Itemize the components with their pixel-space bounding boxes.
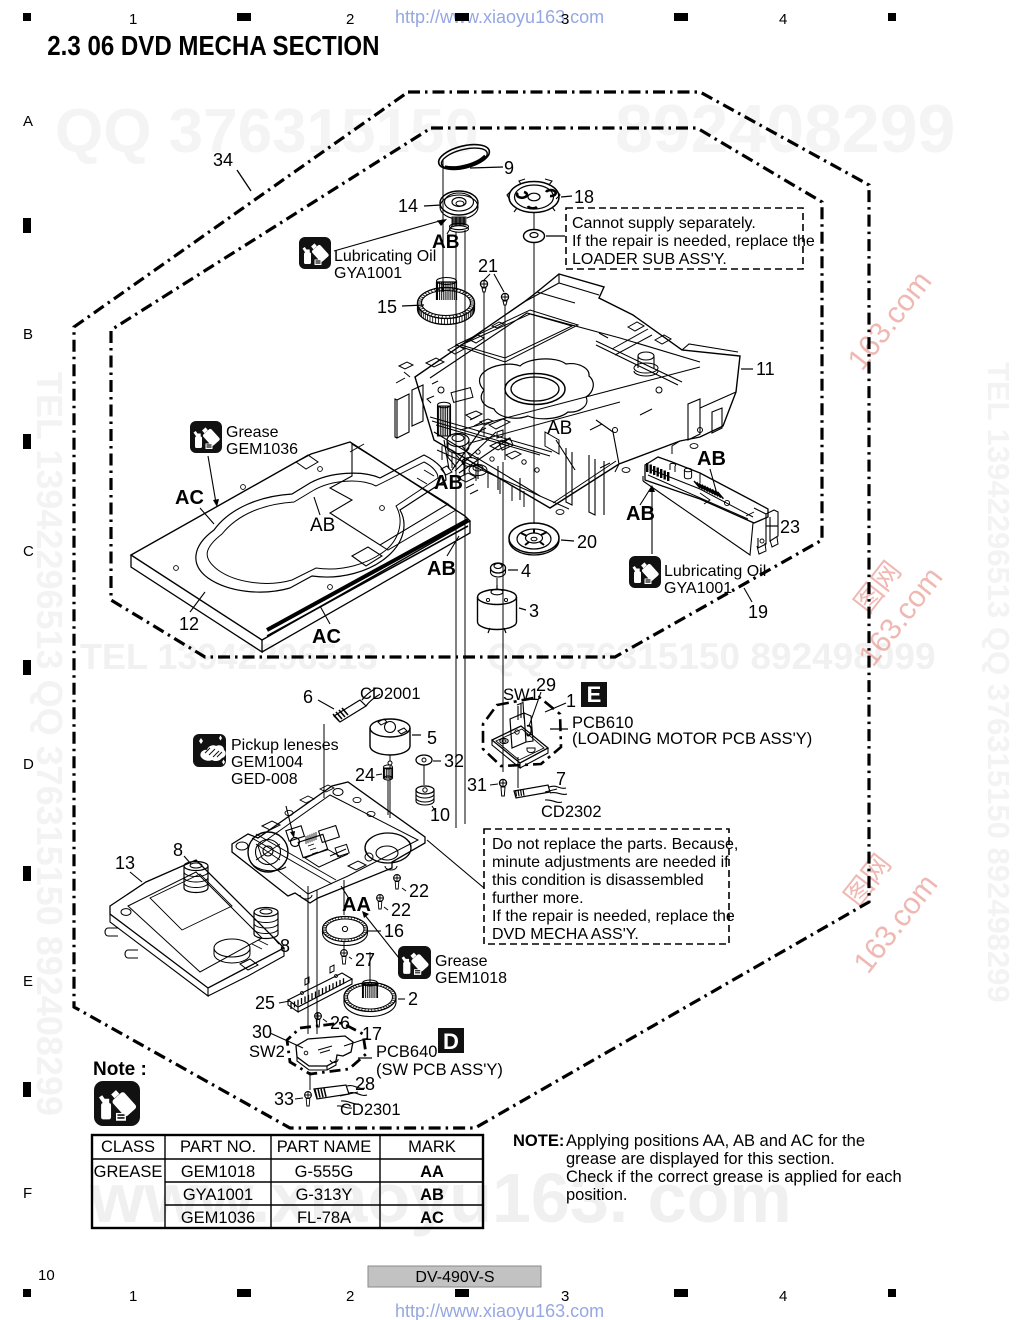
svg-text:DV-490V-S: DV-490V-S bbox=[415, 1269, 494, 1286]
svg-text:G-313Y: G-313Y bbox=[296, 1186, 353, 1204]
svg-text:AB: AB bbox=[420, 1186, 444, 1204]
svg-text:Lubricating Oil: Lubricating Oil bbox=[334, 248, 436, 265]
svg-text:3: 3 bbox=[561, 11, 569, 28]
svg-text:NOTE:: NOTE: bbox=[513, 1132, 564, 1150]
svg-text:further more.: further more. bbox=[492, 890, 584, 907]
svg-text:AC: AC bbox=[175, 487, 204, 509]
svg-text:GED-008: GED-008 bbox=[231, 771, 298, 788]
svg-text:Grease: Grease bbox=[435, 953, 488, 970]
svg-text:1: 1 bbox=[129, 1288, 137, 1305]
svg-text:PCB640: PCB640 bbox=[376, 1043, 437, 1061]
svg-text:13: 13 bbox=[115, 853, 135, 873]
svg-text:http://www.xiaoyu163.com: http://www.xiaoyu163.com bbox=[395, 1301, 604, 1320]
svg-text:AB: AB bbox=[547, 418, 572, 439]
svg-text:GEM1018: GEM1018 bbox=[435, 970, 507, 987]
svg-text:11: 11 bbox=[756, 359, 775, 379]
svg-text:GYA1001: GYA1001 bbox=[664, 580, 732, 597]
svg-text:GEM1036: GEM1036 bbox=[181, 1209, 255, 1227]
svg-text:18: 18 bbox=[574, 187, 594, 207]
svg-text:4: 4 bbox=[779, 11, 787, 28]
svg-text:4: 4 bbox=[779, 1288, 787, 1305]
svg-text:22: 22 bbox=[391, 900, 411, 920]
svg-text:8: 8 bbox=[173, 840, 183, 860]
svg-text:33: 33 bbox=[274, 1089, 294, 1109]
svg-text:20: 20 bbox=[577, 532, 597, 552]
svg-text:1: 1 bbox=[566, 691, 576, 711]
svg-text:FL-78A: FL-78A bbox=[297, 1209, 351, 1227]
svg-text:grease are displayed for this: grease are displayed for this section. bbox=[566, 1150, 835, 1168]
svg-text:minute adjustments are needed: minute adjustments are needed if bbox=[492, 854, 729, 871]
svg-text:163.com: 163.com bbox=[842, 265, 939, 376]
svg-text:TEL 13942296513 QQ 376315150 8: TEL 13942296513 QQ 376315150 892408299 bbox=[29, 372, 70, 1116]
svg-text:2: 2 bbox=[346, 1288, 354, 1305]
svg-text:31: 31 bbox=[467, 775, 487, 795]
svg-text:29: 29 bbox=[536, 675, 556, 695]
svg-text:CD2301: CD2301 bbox=[340, 1101, 401, 1119]
svg-text:C: C bbox=[23, 543, 34, 560]
svg-text:AB: AB bbox=[434, 472, 463, 494]
svg-text:GEM1004: GEM1004 bbox=[231, 754, 303, 771]
svg-text:1: 1 bbox=[129, 11, 137, 28]
svg-text:(LOADING MOTOR PCB ASS'Y): (LOADING MOTOR PCB ASS'Y) bbox=[572, 730, 812, 748]
svg-text:Do not replace the parts. Beca: Do not replace the parts. Because, bbox=[492, 836, 738, 853]
svg-text:10: 10 bbox=[38, 1267, 55, 1284]
svg-text:30: 30 bbox=[252, 1022, 272, 1042]
svg-text:3: 3 bbox=[529, 601, 539, 621]
svg-text:Applying positions AA, AB and: Applying positions AA, AB and AC for the bbox=[566, 1132, 865, 1150]
svg-text:MARK: MARK bbox=[408, 1138, 456, 1156]
svg-text:22: 22 bbox=[409, 881, 429, 901]
svg-text:GEM1036: GEM1036 bbox=[226, 441, 298, 458]
svg-text:21: 21 bbox=[478, 256, 498, 276]
svg-text:If the repair is needed, repla: If the repair is needed, replace the bbox=[492, 908, 735, 925]
svg-text:6: 6 bbox=[303, 687, 313, 707]
svg-text:34: 34 bbox=[213, 150, 233, 170]
svg-text:Cannot supply separately.: Cannot supply separately. bbox=[572, 215, 756, 232]
svg-text:AB: AB bbox=[427, 558, 456, 580]
svg-text:CD2001: CD2001 bbox=[360, 685, 421, 703]
svg-text:AA: AA bbox=[420, 1163, 444, 1181]
svg-text:F: F bbox=[23, 1185, 32, 1202]
svg-text:B: B bbox=[23, 326, 33, 343]
svg-text:28: 28 bbox=[355, 1074, 375, 1094]
svg-text:9: 9 bbox=[504, 158, 514, 178]
svg-text:If the repair is needed, repla: If the repair is needed, replace the bbox=[572, 233, 815, 250]
svg-text:17: 17 bbox=[362, 1024, 382, 1044]
svg-text:16: 16 bbox=[384, 921, 404, 941]
svg-text:8: 8 bbox=[280, 936, 290, 956]
svg-text:DVD MECHA ASS'Y.: DVD MECHA ASS'Y. bbox=[492, 926, 639, 943]
svg-text:AB: AB bbox=[626, 503, 655, 525]
svg-text:position.: position. bbox=[566, 1186, 627, 1204]
svg-text:AB: AB bbox=[310, 515, 335, 536]
svg-text:24: 24 bbox=[355, 765, 375, 785]
svg-text:(SW PCB ASS'Y): (SW PCB ASS'Y) bbox=[376, 1061, 503, 1079]
svg-text:AB: AB bbox=[697, 448, 726, 470]
svg-text:25: 25 bbox=[255, 993, 275, 1013]
svg-text:Pickup leneses: Pickup leneses bbox=[231, 737, 339, 754]
svg-text:A: A bbox=[23, 113, 33, 130]
svg-text:G-555G: G-555G bbox=[295, 1163, 354, 1181]
svg-text:Lubricating Oil: Lubricating Oil bbox=[664, 563, 766, 580]
svg-text:2: 2 bbox=[408, 989, 418, 1009]
svg-text:32: 32 bbox=[444, 751, 464, 771]
svg-text:14: 14 bbox=[398, 196, 418, 216]
svg-text:E: E bbox=[587, 682, 602, 707]
svg-text:http://www.xiaoyu163.com: http://www.xiaoyu163.com bbox=[395, 7, 604, 27]
svg-text:GEM1018: GEM1018 bbox=[181, 1163, 255, 1181]
svg-text:D: D bbox=[23, 756, 34, 773]
svg-text:12: 12 bbox=[179, 614, 199, 634]
svg-text:TEL 13942296513 QQ 376315150 8: TEL 13942296513 QQ 376315150 892498299 bbox=[981, 362, 1016, 1003]
svg-text:Grease: Grease bbox=[226, 424, 279, 441]
svg-text:CD2302: CD2302 bbox=[541, 803, 602, 821]
svg-text:AA: AA bbox=[342, 894, 371, 916]
svg-text:D: D bbox=[443, 1029, 459, 1054]
svg-text:LOADER SUB ASS'Y.: LOADER SUB ASS'Y. bbox=[572, 251, 727, 268]
svg-text:CLASS: CLASS bbox=[101, 1138, 155, 1156]
svg-text:GYA1001: GYA1001 bbox=[183, 1186, 253, 1204]
svg-text:this condition is disassembled: this condition is disassembled bbox=[492, 872, 704, 889]
svg-text:2: 2 bbox=[346, 11, 354, 28]
svg-text:QQ 376315150: QQ 376315150 bbox=[55, 97, 479, 166]
svg-text:SW1: SW1 bbox=[503, 686, 539, 704]
svg-text:AC: AC bbox=[420, 1209, 444, 1227]
svg-text:3: 3 bbox=[561, 1288, 569, 1305]
svg-text:23: 23 bbox=[780, 517, 800, 537]
svg-text:PART NAME: PART NAME bbox=[277, 1138, 371, 1156]
svg-text:GREASE: GREASE bbox=[94, 1163, 163, 1181]
svg-text:19: 19 bbox=[748, 602, 768, 622]
svg-text:Note :: Note : bbox=[93, 1059, 147, 1080]
svg-text:5: 5 bbox=[427, 728, 437, 748]
svg-text:E: E bbox=[23, 973, 33, 990]
svg-text:15: 15 bbox=[377, 297, 397, 317]
svg-text:4: 4 bbox=[521, 561, 531, 581]
svg-text:7: 7 bbox=[556, 769, 566, 789]
svg-text:27: 27 bbox=[355, 950, 375, 970]
svg-text:Check if the correct grease is: Check if the correct grease is applied f… bbox=[566, 1168, 902, 1186]
svg-text:AC: AC bbox=[312, 626, 341, 648]
svg-text:2.3 06 DVD MECHA SECTION: 2.3 06 DVD MECHA SECTION bbox=[47, 29, 379, 61]
svg-text:SW2: SW2 bbox=[249, 1043, 285, 1061]
svg-text:PART NO.: PART NO. bbox=[180, 1138, 256, 1156]
svg-text:892408299: 892408299 bbox=[615, 91, 955, 167]
svg-text:GYA1001: GYA1001 bbox=[334, 265, 402, 282]
